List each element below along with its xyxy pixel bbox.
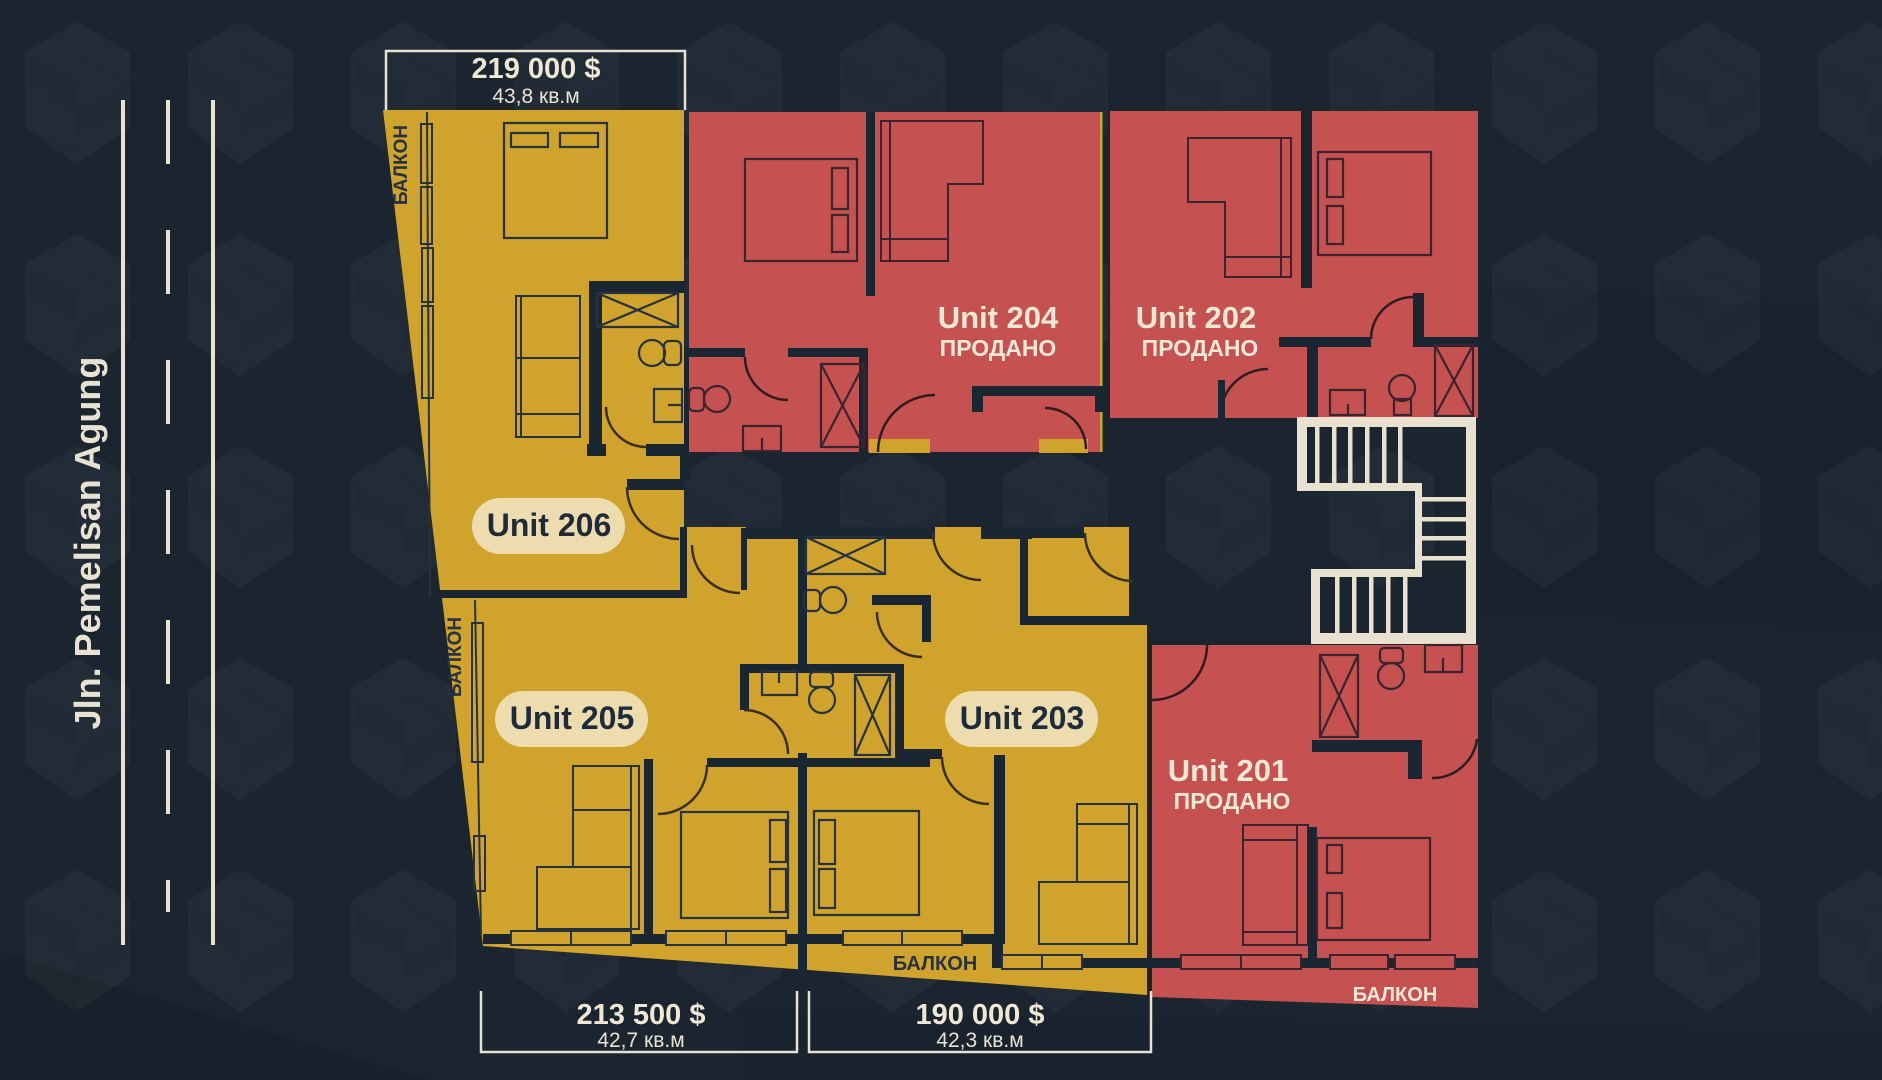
svg-text:БАЛКОН: БАЛКОН [391, 125, 412, 205]
svg-text:190 000 $: 190 000 $ [915, 999, 1044, 1031]
svg-text:Jln. Pemelisan Agung: Jln. Pemelisan Agung [67, 357, 108, 730]
svg-text:Unit 203: Unit 203 [960, 700, 1084, 736]
svg-text:Unit 202: Unit 202 [1136, 300, 1257, 335]
svg-text:ПРОДАНО: ПРОДАНО [1142, 335, 1259, 361]
svg-text:ПРОДАНО: ПРОДАНО [1174, 788, 1291, 814]
svg-text:Unit 204: Unit 204 [938, 300, 1059, 335]
svg-text:213 500 $: 213 500 $ [576, 999, 705, 1031]
svg-text:Unit 201: Unit 201 [1168, 753, 1289, 788]
svg-text:43,8 кв.м: 43,8 кв.м [492, 85, 579, 108]
svg-text:42,3 кв.м: 42,3 кв.м [936, 1029, 1023, 1052]
svg-text:ПРОДАНО: ПРОДАНО [940, 335, 1057, 361]
svg-text:42,7 кв.м: 42,7 кв.м [597, 1029, 684, 1052]
svg-text:БАЛКОН: БАЛКОН [445, 617, 466, 697]
svg-text:БАЛКОН: БАЛКОН [893, 953, 978, 975]
svg-text:Unit 205: Unit 205 [510, 700, 634, 736]
svg-text:219 000 $: 219 000 $ [471, 53, 600, 85]
svg-text:Unit 206: Unit 206 [487, 507, 611, 543]
svg-text:БАЛКОН: БАЛКОН [1353, 984, 1438, 1006]
